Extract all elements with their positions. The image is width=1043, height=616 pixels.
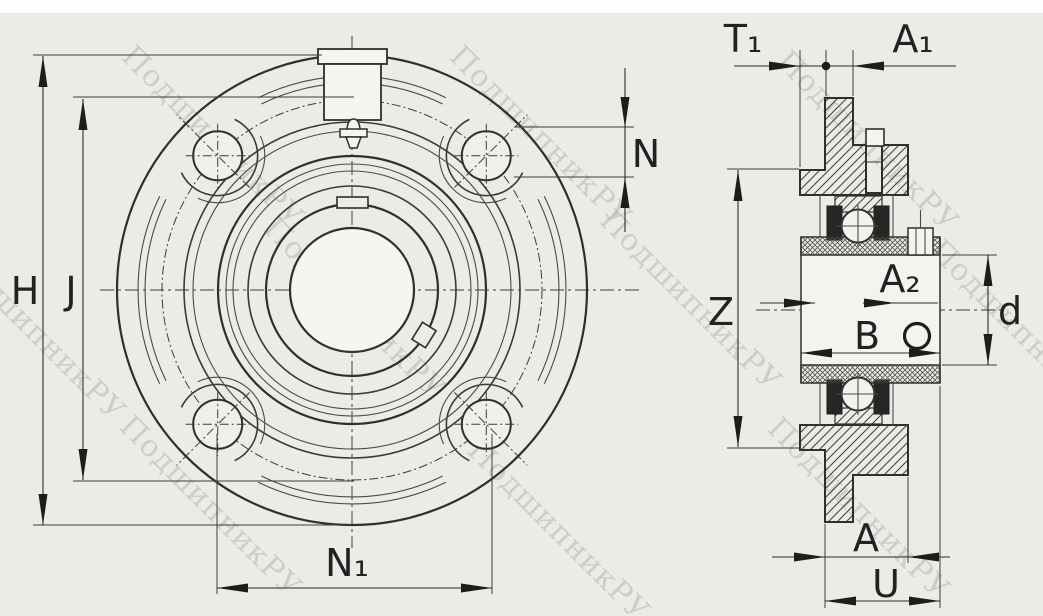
seal-bottom-right: [874, 380, 889, 414]
dim-label-d: d: [998, 289, 1022, 333]
dim-label-a1: A₁: [892, 17, 933, 61]
dim-label-a: A: [853, 516, 879, 560]
page-top-margin: [0, 0, 1043, 13]
dim-label-t1: T₁: [723, 17, 762, 61]
inner-ring-section-bottom: [801, 365, 940, 383]
seal-top-right: [874, 206, 889, 240]
bearing-drawing-canvas: ПодшипникРУ ПодшипникРУ ПодшипникРУ Подш…: [0, 0, 1043, 616]
dim-label-u: U: [872, 562, 900, 606]
dim-label-n: N: [632, 132, 660, 176]
shaft-bore-circle: [290, 228, 414, 352]
grease-nipple-dome: [347, 119, 360, 129]
dim-label-b: B: [854, 314, 880, 358]
dim-label-n1: N₁: [325, 541, 369, 585]
dim-label-a2: A₂: [879, 257, 920, 301]
technical-drawing-page: ПодшипникРУ ПодшипникРУ ПодшипникРУ Подш…: [0, 0, 1043, 616]
grease-fitting-side: [866, 129, 884, 146]
seal-bottom-left: [827, 380, 842, 414]
grease-fitting-body: [324, 64, 381, 120]
seal-top-left: [827, 206, 842, 240]
dim-label-h: H: [11, 269, 40, 313]
keyway-notch: [337, 197, 368, 208]
dim-label-z: Z: [708, 290, 734, 334]
grease-nipple-flange: [340, 129, 367, 137]
dim-label-j: J: [63, 269, 76, 313]
grease-fitting-cap: [318, 49, 387, 64]
